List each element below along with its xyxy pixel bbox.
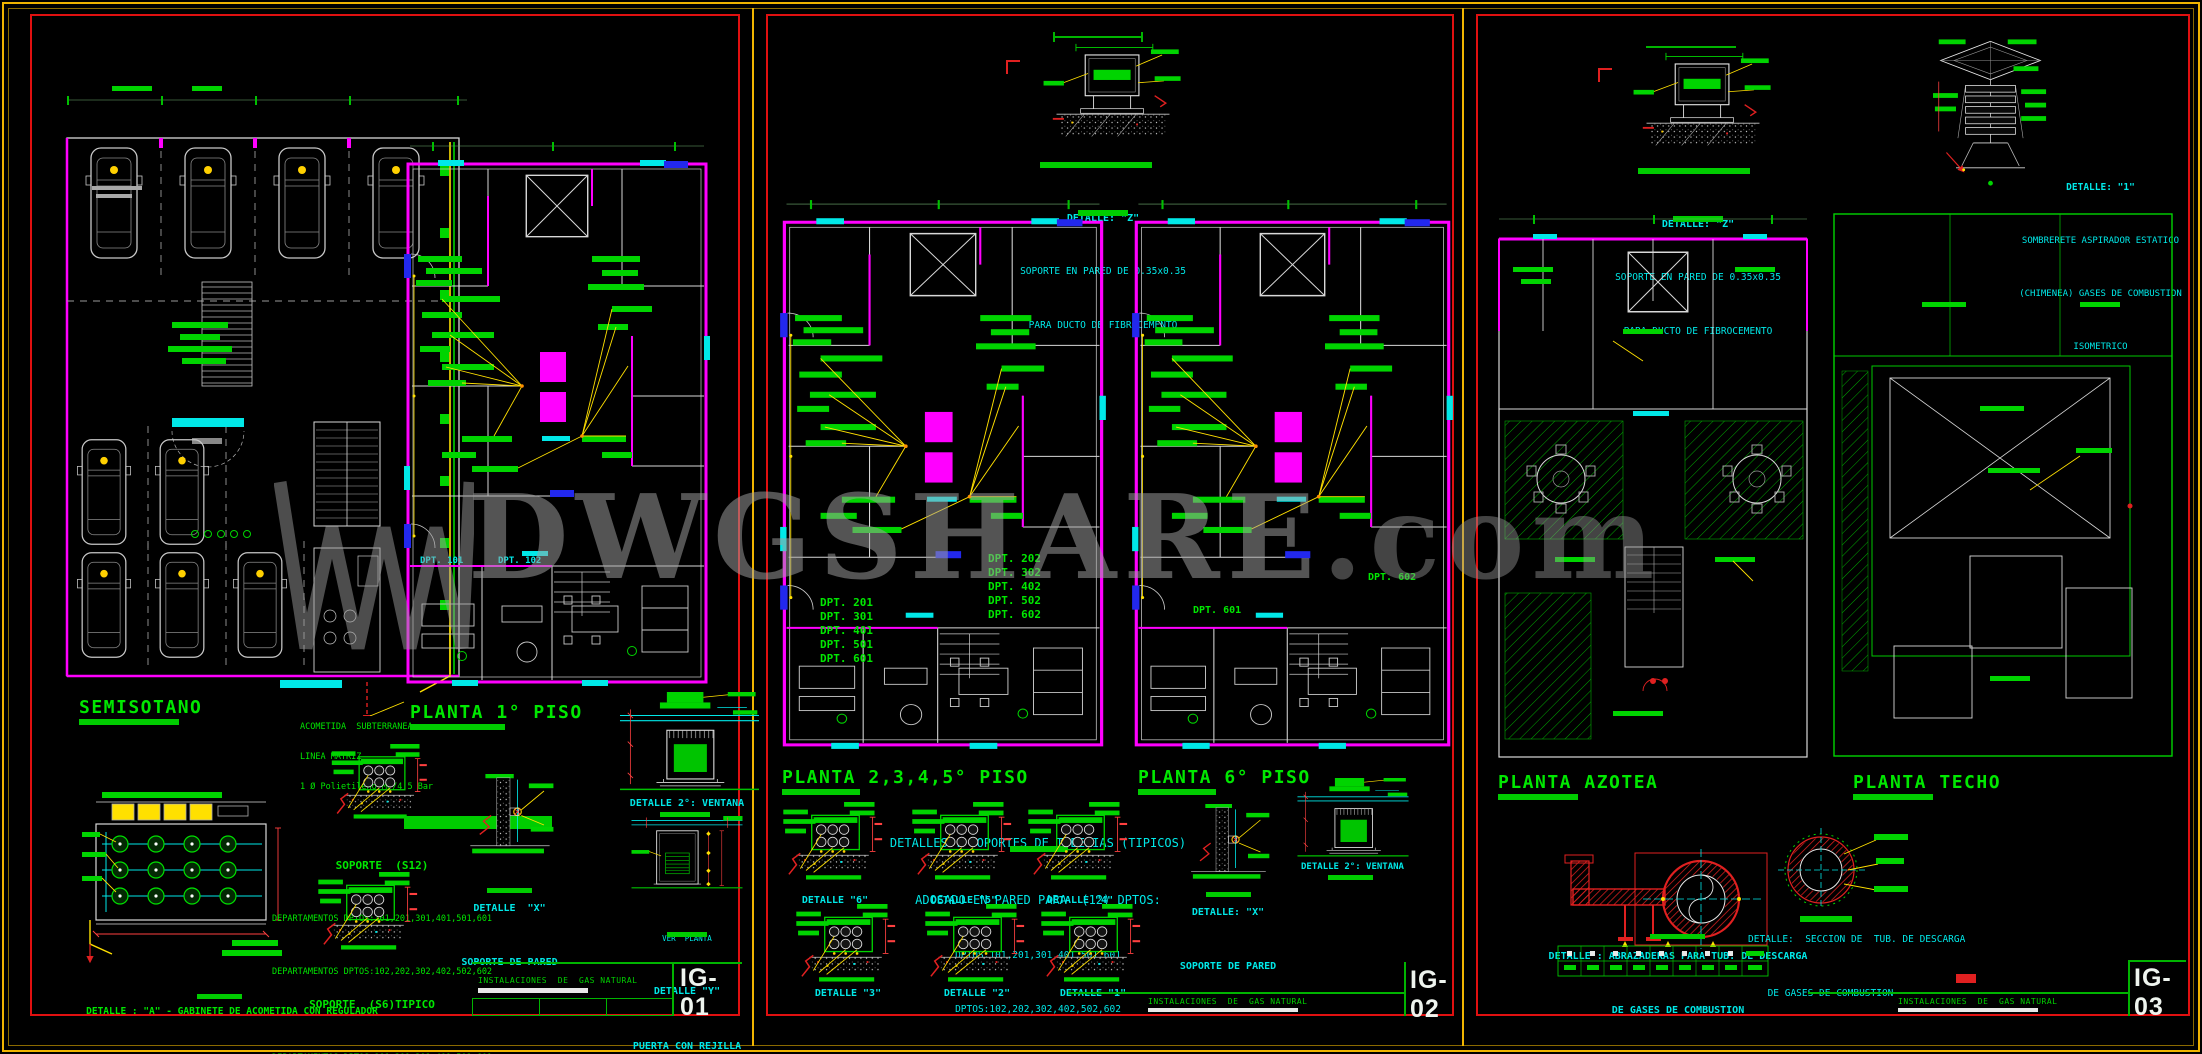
soporte-s6-drawing — [318, 872, 423, 950]
red-corner-mark — [1598, 68, 1612, 82]
titleblock-vline — [2128, 960, 2130, 1016]
cad-drawing-canvas: SEMISOTANO ACOMETIDA SUBTERRANEA LINEA M… — [0, 0, 2202, 1054]
detalle-2-drawing — [925, 904, 1030, 982]
seccion-label: DETALLE: SECCION DE TUB. DE DESCARGA DE … — [1748, 892, 1913, 1041]
dim-tick — [1141, 32, 1143, 42]
abrazaderas-underbar — [1650, 934, 1705, 939]
planta-2345-title: PLANTA 2,3,4,5° PISO — [782, 767, 1029, 788]
sheet-code: IG-01 — [680, 964, 738, 1022]
ventana-detail-drawing — [617, 692, 762, 792]
detalle-z-highlight — [1040, 162, 1152, 168]
planta-1-piso-underbar — [410, 724, 505, 730]
planta-azotea-title: PLANTA AZOTEA — [1498, 772, 1658, 793]
ventana-underbar — [1328, 875, 1373, 880]
detalle-z-highlight — [1638, 168, 1750, 174]
soporte-s6-label: SOPORTE (S6)TIPICO DEPARTAMENTOS DPTOS:1… — [272, 956, 472, 1054]
titleblock-cells — [472, 998, 674, 1016]
detalle-x-underbar — [487, 888, 532, 893]
sheet-code: IG-02 — [1410, 966, 1452, 1024]
detalle-x-drawing — [462, 774, 557, 859]
dpt-101-label: DPT. 101 — [420, 556, 463, 568]
titleblock-project: INSTALACIONES DE GAS NATURAL — [478, 976, 638, 985]
detalle-1-drawing — [1041, 904, 1146, 982]
sheet-code: IG-03 — [2134, 964, 2188, 1022]
titleblock-project: INSTALACIONES DE GAS NATURAL — [1148, 997, 1308, 1006]
titleblock-line — [1068, 992, 1404, 994]
planta-techo-underbar — [1853, 794, 1933, 800]
planta-techo-title: PLANTA TECHO — [1853, 772, 2001, 793]
detalle-4-drawing — [1028, 802, 1133, 880]
planta-azotea-underbar — [1498, 794, 1578, 800]
semisotano-title: SEMISOTANO — [79, 697, 202, 718]
planta-1-piso-drawing — [402, 136, 712, 696]
detalle-5-drawing — [912, 802, 1017, 880]
sheet-ig02: DETALLE: "Z" SOPORTE EN PARED DE 0.35x0.… — [766, 14, 1454, 1016]
puerta-detail-drawing — [617, 816, 757, 890]
titleblock-project-underline — [1898, 1008, 2038, 1012]
sheet-divider-1 — [752, 8, 754, 1046]
titleblock-line — [1808, 992, 2130, 994]
dpt-601-label: DPT. 601 — [1193, 604, 1241, 617]
titleblock-project: INSTALACIONES DE GAS NATURAL — [1898, 997, 2058, 1006]
titleblock-project-underline — [1148, 1008, 1298, 1012]
detalle-6-drawing — [783, 802, 888, 880]
dpt-stack-right: DPT. 202DPT. 302DPT. 402 DPT. 502DPT. 60… — [988, 552, 1041, 622]
ventana-detail-label: DETALLE 2°: VENTANA — [607, 798, 767, 809]
sheet-ig01: SEMISOTANO ACOMETIDA SUBTERRANEA LINEA M… — [30, 14, 740, 1016]
planta-2345-drawing — [778, 194, 1108, 759]
detalle-z-drawing — [1628, 51, 1778, 176]
semisotano-title-underbar — [79, 719, 179, 725]
titleblock-topline — [2128, 960, 2186, 962]
detalle-x-underbar — [1206, 892, 1251, 897]
ventana-detail-label: DETALLE 2°: VENTANA — [1280, 862, 1425, 872]
red-revision-mark — [1956, 974, 1976, 983]
planta-6-title: PLANTA 6° PISO — [1138, 767, 1311, 788]
detalle-z-dim-line — [1646, 46, 1736, 48]
sheet-divider-2 — [1462, 8, 1464, 1046]
red-corner-mark — [1006, 60, 1020, 74]
titleblock-vline — [1404, 962, 1406, 1016]
planta-6-drawing — [1130, 194, 1455, 759]
gabinete-label-underbar — [197, 994, 242, 999]
planta-azotea-drawing — [1493, 211, 1813, 766]
detalle-3-label: DETALLE "3" — [793, 988, 903, 999]
ventana-detail-drawing — [1293, 778, 1413, 858]
dpt-602-label: DPT. 602 — [1368, 571, 1416, 584]
sheet-ig03: DETALLE: "Z" SOPORTE EN PARED DE 0.35x0.… — [1476, 14, 2190, 1016]
puerta-underbar — [667, 932, 707, 937]
detalle-2-label: DETALLE "2" — [922, 988, 1032, 999]
planta-1-piso-title: PLANTA 1° PISO — [410, 702, 583, 723]
dpt-stack-left: DPT. 201DPT. 301DPT. 401 DPT. 501DPT. 60… — [820, 596, 873, 666]
titleblock-project-underline — [478, 988, 588, 993]
dim-tick — [1053, 32, 1055, 42]
detalle-3-drawing — [796, 904, 901, 982]
soporte-s12-drawing — [317, 744, 447, 819]
planta-techo-drawing — [1830, 206, 2178, 766]
detalle-z-dim-line — [1053, 36, 1143, 38]
dpt-102-label: DPT. 102 — [498, 556, 541, 568]
detalle-z-drawing — [1038, 42, 1188, 167]
seccion-underbar — [1800, 916, 1852, 922]
